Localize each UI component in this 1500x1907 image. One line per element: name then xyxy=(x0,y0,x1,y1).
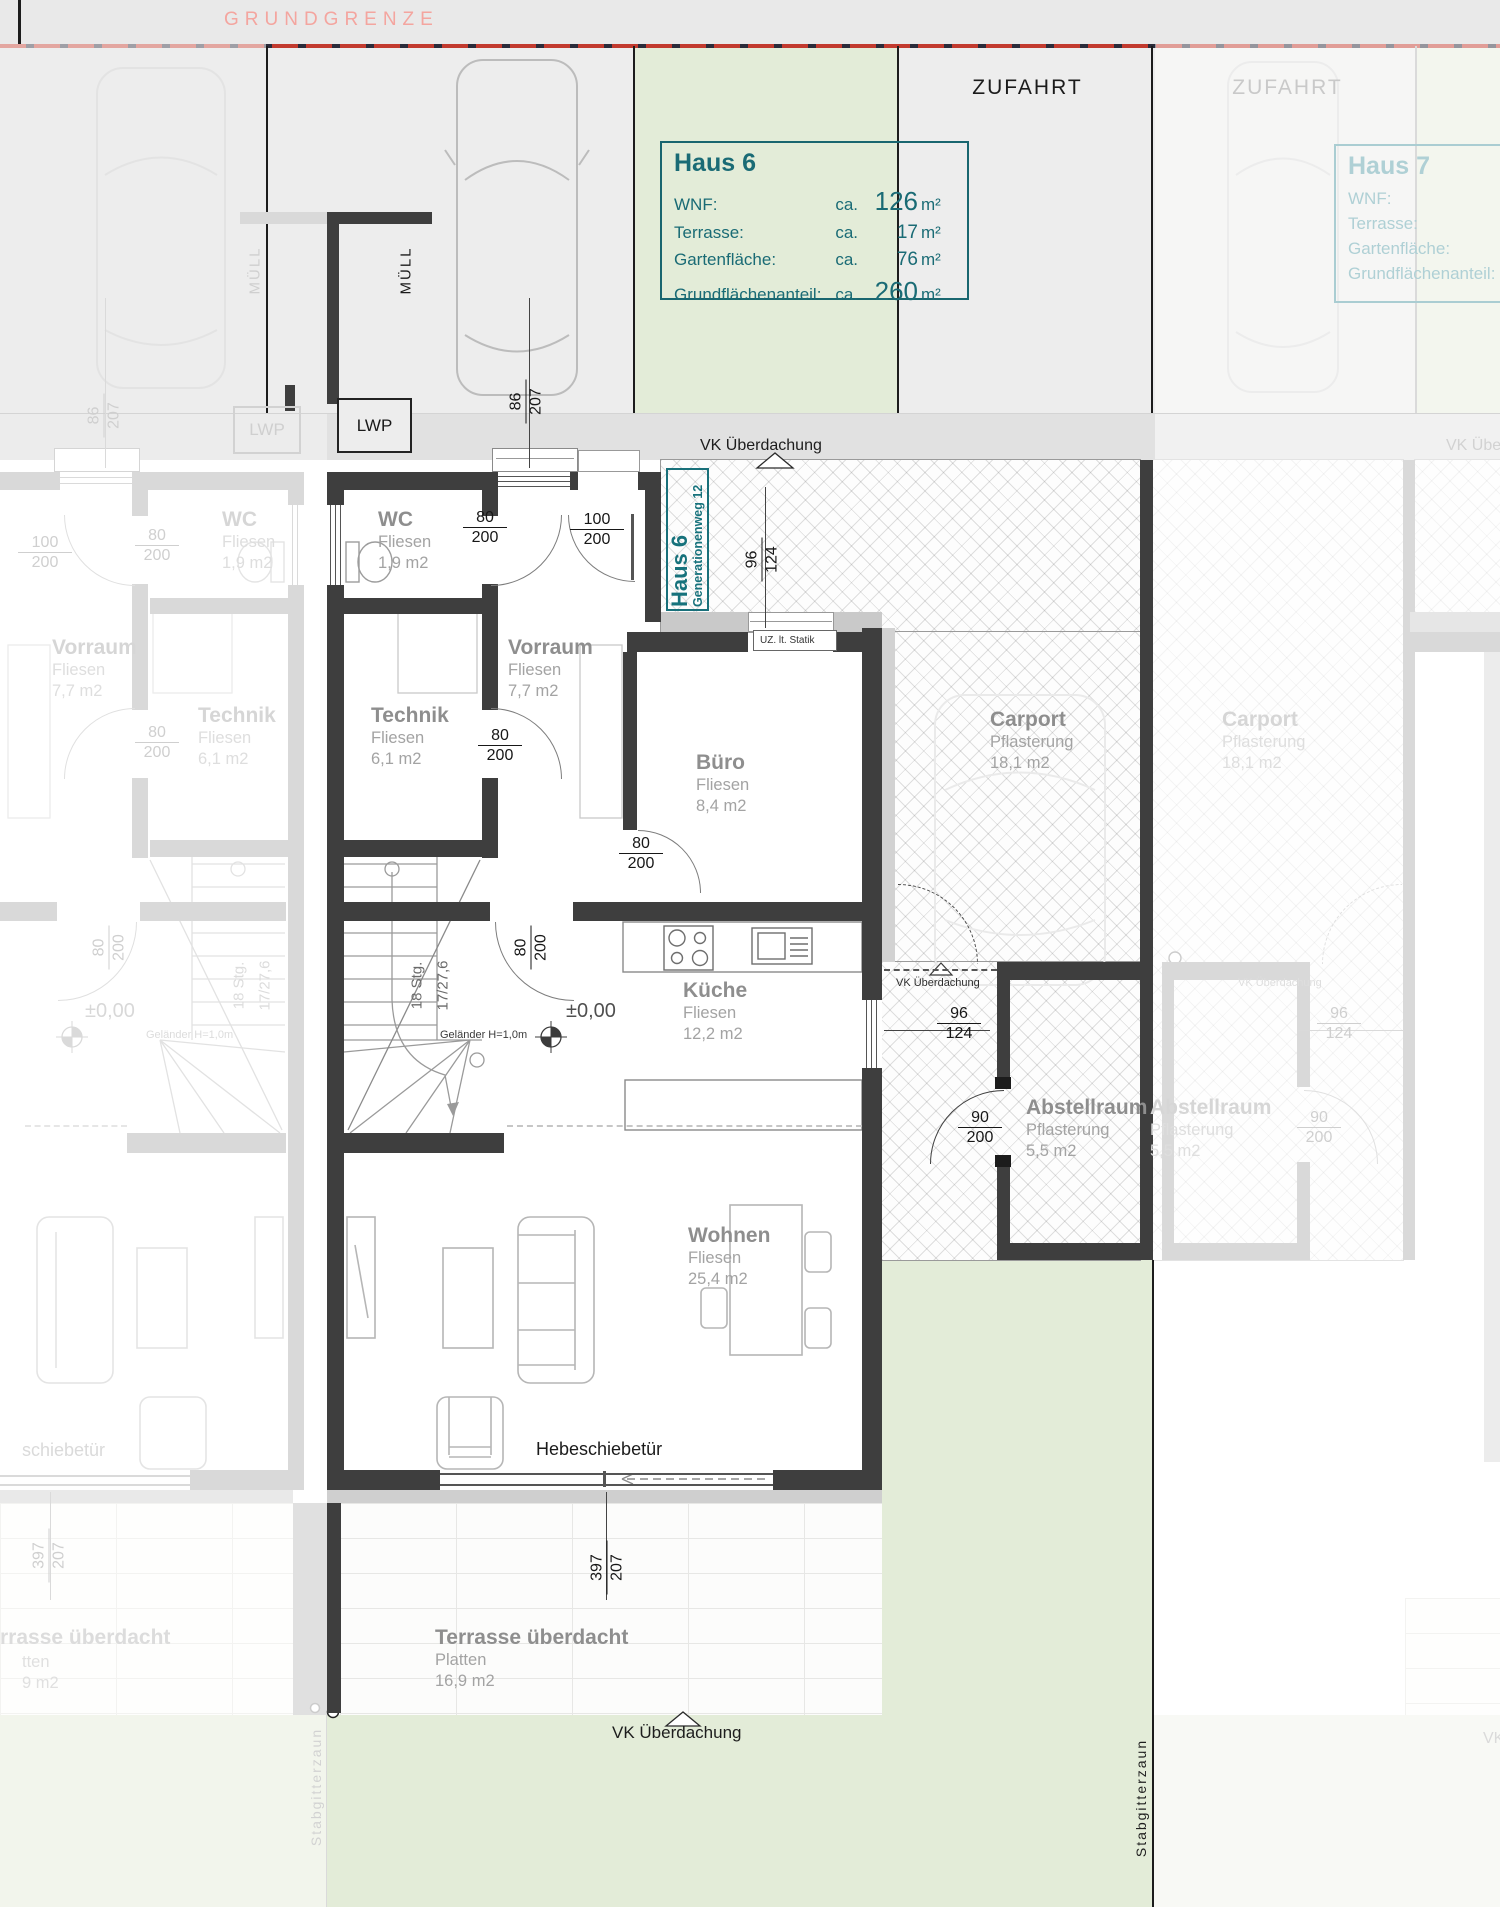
vk-label-bottom: VK Überdachung xyxy=(612,1723,741,1743)
dim-terrace-faded: 397207 xyxy=(31,1529,68,1583)
dim-technik-door-faded: 80200 xyxy=(135,724,179,761)
haus6-address-tag: Haus 6 Generationenweg 12 xyxy=(666,468,709,611)
wall-mid-a xyxy=(344,902,490,921)
wall-abstell-left-a xyxy=(997,980,1010,1087)
terrace-step-faded xyxy=(0,1490,293,1503)
garden-bottom-faded-left xyxy=(0,1715,327,1907)
garden-strip-line-left xyxy=(633,46,635,413)
wall-top-b xyxy=(570,472,578,490)
wall-abstell-bottom-faded xyxy=(1162,1243,1310,1260)
uz-statik-label: UZ. lt. Statik xyxy=(760,635,814,646)
stairs-count-label-faded: 18 Stg. xyxy=(226,930,252,1040)
terrasse-partial-name-faded: rrasse überdacht xyxy=(0,1626,170,1650)
window-line-faded xyxy=(297,505,298,585)
sill-line xyxy=(496,458,574,459)
wall-top-faded-a xyxy=(0,472,60,490)
outer-band-right xyxy=(882,628,895,962)
wall-stairs-top-faded xyxy=(150,840,288,857)
dim-technik-door: 80200 xyxy=(478,727,522,764)
sliding-door-arrow xyxy=(622,1474,765,1484)
wall-right-b xyxy=(862,1068,882,1490)
terrace-left-wall xyxy=(327,1503,341,1713)
slide-door-line xyxy=(440,1473,773,1475)
lwp-label: LWP xyxy=(357,416,393,436)
entry-court-hatch xyxy=(661,460,1140,632)
plot-line-carport xyxy=(1151,46,1153,460)
info-row: Gartenfläche: ca. 76 m² xyxy=(674,249,955,271)
window-line xyxy=(498,481,570,482)
slide-door-line-faded xyxy=(0,1475,190,1477)
wall-carport-right-faded xyxy=(1403,460,1415,1260)
muell-wall-h xyxy=(337,212,432,224)
gallery-dashed-line xyxy=(507,1125,862,1127)
wall-abstell-right-faded-a xyxy=(1297,980,1310,1087)
terrasse-partial-area-faded: 9 m2 xyxy=(22,1674,59,1693)
window-right-kitchen xyxy=(862,1000,882,1068)
wall-technik-faded-b xyxy=(132,778,148,858)
slide-door-line-faded xyxy=(0,1484,190,1486)
info-row-faded: Terrasse: xyxy=(1348,214,1500,234)
wall-mid-faded-b xyxy=(0,902,57,921)
entry-hatch-faded-right xyxy=(1415,460,1500,612)
room-label-wohnen: Wohnen Fliesen 25,4 m2 xyxy=(688,1224,770,1290)
zufahrt-label: ZUFAHRT xyxy=(950,76,1105,100)
muell-label-faded: MÜLL xyxy=(240,230,270,310)
room-label-vorraum-faded: Vorraum Fliesen 7,7 m2 xyxy=(52,636,137,702)
lwp-box-faded: LWP xyxy=(233,406,301,454)
gelaender-label-faded: Geländer H=1,0m xyxy=(146,1029,233,1041)
dim-kitchen-window: 96124 xyxy=(937,1005,981,1042)
stairs-rise-label: 17/27,6 xyxy=(430,930,456,1040)
door-leaf-entry xyxy=(631,514,634,580)
muell-wall-faded xyxy=(240,212,327,224)
wall-left-b xyxy=(327,585,344,1490)
room-label-wc: WC Fliesen 1,9 m2 xyxy=(378,508,431,574)
stairs-rise-label-faded: 17/27,6 xyxy=(252,930,278,1040)
room-label-technik-faded: Technik Fliesen 6,1 m2 xyxy=(198,704,276,770)
window-line xyxy=(876,1000,877,1068)
wall-bottom-b xyxy=(773,1470,882,1490)
wall-wc-door-faded-a xyxy=(132,490,148,516)
wall-stairs-bottom-faded xyxy=(127,1133,286,1153)
floor-plan-page: LWP LWP GRUNDGRENZE ZUFAHRT ZUFAHRT MÜLL… xyxy=(0,0,1500,1907)
lwp-box: LWP xyxy=(337,398,412,453)
stabgitterzaun-label: Stabgitterzaun xyxy=(1128,1725,1154,1870)
dim-entry-width: 96124 xyxy=(744,538,781,582)
porch-sill-faded-right xyxy=(1410,612,1500,632)
info-row-faded: Gartenfläche: xyxy=(1348,239,1500,259)
room-label-terrasse: Terrasse überdacht Platten 16,9 m2 xyxy=(435,1626,628,1692)
room-label-vorraum: Vorraum Fliesen 7,7 m2 xyxy=(508,636,593,702)
axis-line-faded xyxy=(105,298,106,468)
wall-technik-right-a xyxy=(482,598,498,710)
schiebetuer-partial-faded: schiebetür xyxy=(22,1440,105,1461)
wall-bottom-faded xyxy=(190,1470,304,1490)
dim-kitchen-window-faded: 96124 xyxy=(1317,1005,1361,1042)
vk-label-carport: VK Überdachung xyxy=(896,977,980,989)
house7-edge xyxy=(1484,652,1500,1462)
dim-wc-door-faded: 80200 xyxy=(135,527,179,564)
lwp-label-faded: LWP xyxy=(249,420,285,440)
wall-right-a xyxy=(862,628,882,1000)
dim-abstell-door: 90200 xyxy=(958,1109,1002,1146)
door-arc-kueche-faded xyxy=(0,843,137,1001)
wall-porch-faded-right xyxy=(1403,632,1500,652)
wall-abstell-bottom xyxy=(997,1243,1153,1260)
level-label-faded: ±0,00 xyxy=(85,1000,135,1023)
room-label-kueche: Küche Fliesen 12,2 m2 xyxy=(683,979,747,1045)
window-line-faded xyxy=(292,505,293,585)
terrace-side-strip-faded xyxy=(293,1503,327,1715)
dim-top-window: 86207 xyxy=(508,380,545,424)
dim-top-window-faded: 86207 xyxy=(86,394,123,438)
room-label-carport: Carport Pflasterung 18,1 m2 xyxy=(990,708,1073,774)
room-label-abstellraum: Abstellraum Pflasterung 5,5 m2 xyxy=(1026,1096,1147,1162)
info-row: Grundflächenanteil: ca. 260 m² xyxy=(674,276,955,307)
level-label: ±0,00 xyxy=(566,1000,616,1023)
info-row-faded: Grundflächenanteil: xyxy=(1348,264,1500,284)
muell-wall-v xyxy=(327,212,339,404)
level-marker-faded xyxy=(56,1021,88,1053)
info-row: WNF: ca. 126 m² xyxy=(674,186,955,217)
window-line xyxy=(335,505,336,585)
info-row: Terrasse: ca. 17 m² xyxy=(674,222,955,244)
wall-buero-left xyxy=(623,652,637,830)
window-line xyxy=(866,1000,867,1068)
dash-fade-right xyxy=(1155,44,1500,48)
garden-right-strip xyxy=(882,1260,1153,1715)
haus7-info-box: Haus 7 WNF: Terrasse: Gartenfläche: Grun… xyxy=(1334,144,1500,303)
wall-wc-bottom xyxy=(344,598,498,614)
vk-label-bottom-faded: VK Überdachung xyxy=(1483,1730,1500,1748)
dash-fade-left xyxy=(0,44,266,48)
terrace-step xyxy=(327,1490,882,1503)
window-top-faded xyxy=(60,472,132,490)
grundgrenze-label: GRUNDGRENZE xyxy=(224,9,429,31)
hebeschiebetuer-label: Hebeschiebetür xyxy=(536,1439,662,1460)
room-label-technik: Technik Fliesen 6,1 m2 xyxy=(371,704,449,770)
window-sill-top xyxy=(492,448,578,472)
dim-kueche-door: 80200 xyxy=(513,926,550,970)
vk-label-top: VK Überdachung xyxy=(700,437,822,455)
vk-label-carport-faded: VK Überdachung xyxy=(1238,977,1322,989)
zufahrt-label-faded: ZUFAHRT xyxy=(1210,76,1365,100)
wall-mid-faded-a xyxy=(140,902,286,921)
wall-stairs-bottom xyxy=(344,1133,504,1153)
dim-terrace: 397207 xyxy=(589,1541,626,1595)
slide-door-line xyxy=(440,1484,773,1486)
garden-bottom xyxy=(327,1715,1153,1907)
window-neighbor xyxy=(288,505,304,585)
wall-porch-bottom-a xyxy=(627,632,748,652)
wall-neighbor-right-a xyxy=(288,472,304,505)
room-label-abstellraum-faded: Abstellraum Pflasterung 5,5 m2 xyxy=(1150,1096,1271,1162)
slide-door-mullion xyxy=(603,1471,606,1487)
address-street: Generationenweg 12 xyxy=(691,468,706,607)
room-label-buero: Büro Fliesen 8,4 m2 xyxy=(696,751,749,817)
window-line xyxy=(330,505,331,585)
abstell-door-stub xyxy=(995,1077,1011,1089)
terrasse-partial-finish-faded: tten xyxy=(22,1653,50,1672)
walkway-dashed-threshold xyxy=(884,969,997,971)
window-line xyxy=(340,505,341,585)
wall-neighbor-right-b xyxy=(288,585,304,1490)
room-label-wc-faded: WC Fliesen 1,9 m2 xyxy=(222,508,275,574)
wall-wc-bottom-faded xyxy=(150,598,288,614)
window-sill-top-faded xyxy=(54,448,140,472)
garden-bottom-faded-right xyxy=(1153,1715,1500,1907)
window-line xyxy=(871,1000,872,1068)
wall-mid-b xyxy=(573,902,882,921)
terrace-bricks-faded-right xyxy=(1405,1598,1500,1715)
wall-top-a xyxy=(327,472,498,490)
muell-label: MÜLL xyxy=(391,230,421,310)
haus6-info-box: Haus 6 WNF: ca. 126 m² Terrasse: ca. 17 … xyxy=(660,141,969,300)
wall-bottom-a xyxy=(327,1470,440,1490)
address-house: Haus 6 xyxy=(668,468,691,607)
gallery-dashed-faded xyxy=(25,1125,127,1127)
dim-wc-door: 80200 xyxy=(463,509,507,546)
frame-line-left xyxy=(18,0,21,46)
dim-kueche-door-faded: 80200 xyxy=(91,926,128,970)
dim-buero-door: 80200 xyxy=(619,835,663,872)
entry-step-top xyxy=(578,450,640,472)
dim-abstell-door-faded: 90200 xyxy=(1297,1109,1341,1146)
wall-top-faded-b xyxy=(132,472,288,490)
wall-stairs-top xyxy=(344,840,498,857)
threshold-line xyxy=(750,621,832,622)
window-line xyxy=(498,486,570,487)
wall-left-a xyxy=(327,472,344,505)
window-line-faded xyxy=(60,477,132,478)
dim-entry-door-faded: 100200 xyxy=(18,534,72,571)
window-line-faded xyxy=(60,483,132,484)
room-label-carport-faded: Carport Pflasterung 18,1 m2 xyxy=(1222,708,1305,774)
stabgitterzaun-label-faded: Stabgitterzaun xyxy=(303,1712,329,1862)
entry-threshold xyxy=(748,612,834,632)
vk-label-top-faded: VK Überdachung xyxy=(1446,437,1500,455)
haus7-info-title: Haus 7 xyxy=(1348,152,1500,181)
living-furniture-faded xyxy=(37,1217,283,1469)
window-line xyxy=(498,476,570,477)
stairs-count-label: 18 Stg. xyxy=(404,930,430,1040)
wall-abstell-top xyxy=(997,962,1153,980)
wall-porch-side xyxy=(645,472,661,622)
dim-entry-door: 100200 xyxy=(570,511,624,548)
vk-band-topline xyxy=(0,413,1500,414)
info-row-faded: WNF: xyxy=(1348,189,1500,209)
haus6-info-title: Haus 6 xyxy=(674,149,955,178)
